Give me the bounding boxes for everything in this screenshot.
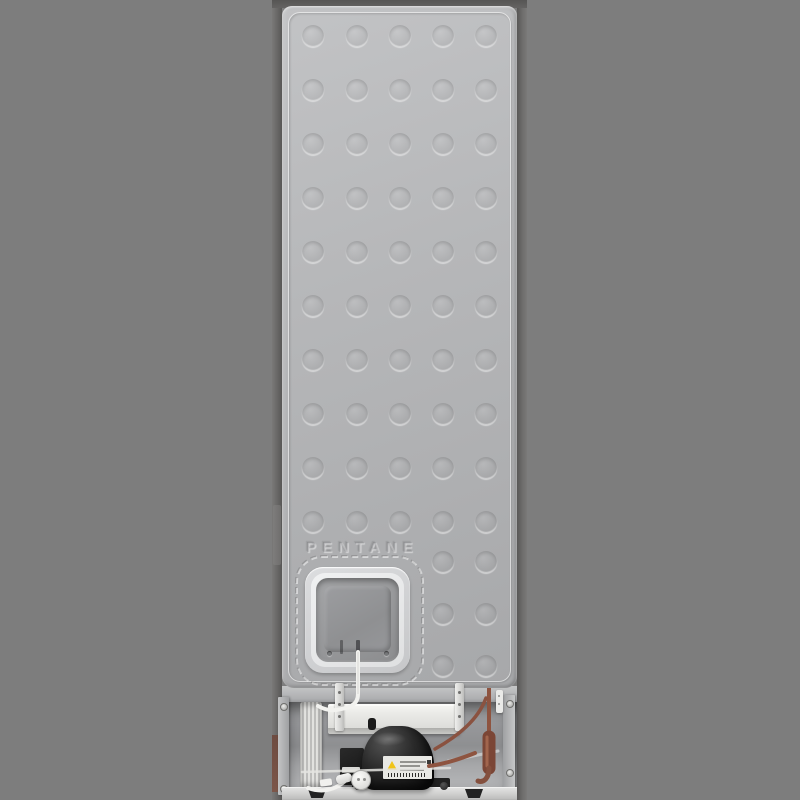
panel-dimple	[389, 349, 411, 371]
label-barcode	[388, 773, 426, 777]
compressor-pipe-stub	[368, 718, 376, 730]
pentane-embossed-text: PENTANE	[306, 539, 419, 556]
power-plug	[351, 770, 371, 790]
cabinet-side-left	[272, 0, 282, 800]
access-screw-right	[384, 651, 389, 656]
access-cover-recess	[316, 578, 399, 662]
label-text-line	[400, 761, 426, 763]
label-text-line	[400, 769, 424, 771]
cable-exit-slot	[356, 640, 360, 656]
compressor-bolt	[440, 782, 448, 790]
strap-hole	[458, 703, 461, 706]
panel-dimple	[389, 241, 411, 263]
bracket-screw	[506, 700, 514, 708]
clip-hole	[498, 703, 500, 705]
panel-dimple	[302, 241, 324, 263]
label-text-line	[400, 765, 420, 767]
panel-dimple	[389, 511, 411, 533]
panel-dimple	[475, 187, 497, 209]
compressor-rating-label	[383, 756, 432, 779]
panel-dimple	[475, 603, 497, 625]
panel-dimple	[346, 295, 368, 317]
strap-hole	[458, 715, 461, 718]
compressor-highlight	[372, 732, 406, 746]
panel-dimple	[346, 511, 368, 533]
panel-dimple	[475, 79, 497, 101]
strap-hole	[338, 715, 341, 718]
panel-dimple	[432, 349, 454, 371]
strap-hole	[338, 703, 341, 706]
panel-dimple	[475, 133, 497, 155]
panel-dimple	[432, 241, 454, 263]
panel-dimple	[389, 187, 411, 209]
strap-hole	[338, 691, 341, 694]
bracket-screw	[506, 769, 514, 777]
strap-hole	[458, 691, 461, 694]
panel-dimple	[475, 403, 497, 425]
panel-dimple	[432, 551, 454, 573]
panel-dimple	[389, 295, 411, 317]
panel-dimple	[432, 133, 454, 155]
panel-dimple	[389, 79, 411, 101]
panel-dimple	[432, 457, 454, 479]
panel-dimple	[475, 25, 497, 47]
bay-bracket-left	[278, 697, 289, 795]
bay-bracket-right	[503, 695, 515, 795]
panel-dimple	[432, 603, 454, 625]
panel-dimple	[432, 25, 454, 47]
panel-dimple	[475, 241, 497, 263]
panel-dimple	[302, 133, 324, 155]
panel-dimple	[346, 187, 368, 209]
plug-pin-hole	[357, 778, 360, 781]
label-mark	[427, 760, 431, 764]
panel-dimple	[302, 187, 324, 209]
panel-dimple	[346, 403, 368, 425]
panel-dimple	[302, 349, 324, 371]
panel-dimple	[346, 241, 368, 263]
panel-dimple	[389, 133, 411, 155]
panel-dimple	[389, 25, 411, 47]
panel-dimple	[475, 349, 497, 371]
panel-dimple	[346, 79, 368, 101]
panel-dimple	[389, 403, 411, 425]
back-panel: PENTANE	[282, 6, 517, 688]
panel-dimple	[346, 25, 368, 47]
panel-dimple	[432, 295, 454, 317]
panel-dimple	[475, 457, 497, 479]
panel-dimple	[432, 403, 454, 425]
plug-pin-hole	[363, 778, 366, 781]
panel-dimple	[302, 295, 324, 317]
cabinet-side-right	[517, 0, 527, 800]
side-hinge-segment	[273, 505, 281, 565]
mounting-strap-left	[335, 683, 344, 731]
bracket-screw	[280, 703, 288, 711]
panel-dimple	[432, 511, 454, 533]
panel-dimple	[302, 79, 324, 101]
panel-dimple	[475, 551, 497, 573]
panel-dimple	[475, 295, 497, 317]
pipe-clip	[496, 690, 503, 713]
warning-triangle-icon	[387, 761, 397, 770]
panel-dimple	[302, 457, 324, 479]
clip-hole	[498, 695, 500, 697]
panel-dimple	[302, 25, 324, 47]
panel-dimple	[432, 655, 454, 677]
access-screw-left	[327, 651, 332, 656]
panel-dimple	[475, 655, 497, 677]
power-cable-coil	[300, 702, 322, 788]
panel-dimple	[302, 403, 324, 425]
panel-dimple	[346, 133, 368, 155]
mounting-strap-right	[455, 683, 464, 731]
access-cover-slot	[340, 640, 343, 654]
access-cover	[305, 567, 410, 673]
refrigerator-rear: PENTANE	[272, 0, 527, 800]
panel-dimple	[346, 457, 368, 479]
panel-dimple	[302, 511, 324, 533]
panel-dimple	[432, 79, 454, 101]
panel-dimple	[475, 511, 497, 533]
product-photo-stage: PENTANE	[0, 0, 800, 800]
panel-dimple	[432, 187, 454, 209]
panel-dimple	[346, 349, 368, 371]
panel-dimple	[389, 457, 411, 479]
